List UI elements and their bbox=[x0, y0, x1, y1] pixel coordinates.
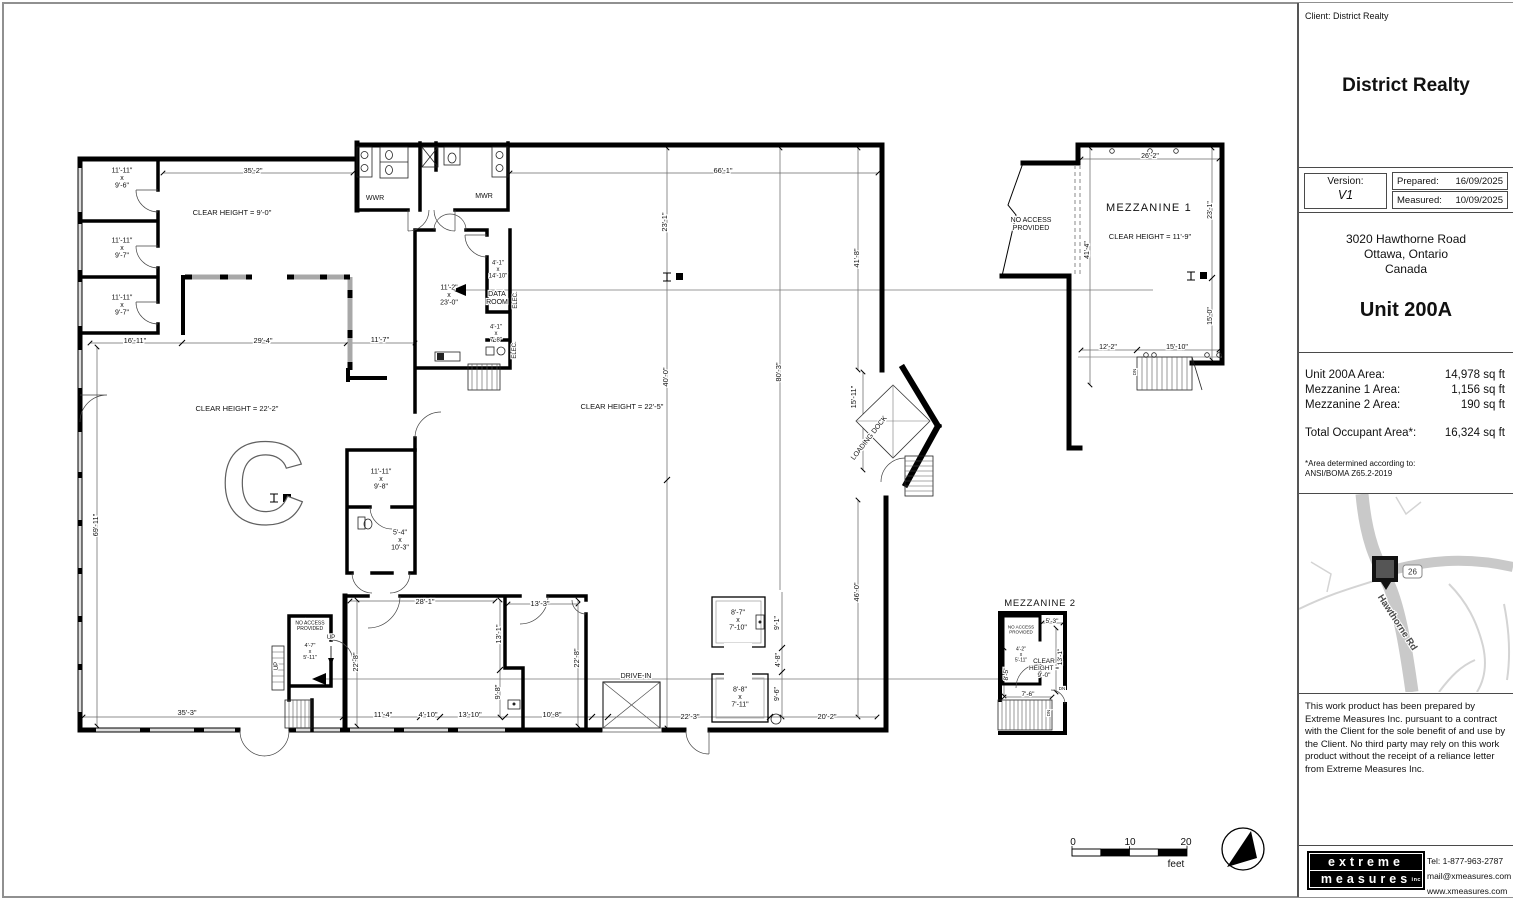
room-name-label: WWR bbox=[366, 195, 384, 202]
dim-label: 35'-3" bbox=[177, 708, 196, 717]
version-value: V1 bbox=[1305, 188, 1386, 202]
stair-direction-label: DN bbox=[1046, 710, 1051, 717]
dim-label: 13'-1" bbox=[1057, 648, 1064, 665]
room-size-label: 11'-11"x9'-7" bbox=[112, 237, 133, 259]
area-value: 190 sq ft bbox=[1461, 399, 1505, 411]
glazed-partitions bbox=[183, 277, 385, 380]
prepared-label: Prepared: bbox=[1397, 176, 1439, 187]
dim-label: 22'-8" bbox=[351, 652, 360, 671]
scale-unit-label: feet bbox=[1168, 859, 1185, 870]
dim-label: 23'-1" bbox=[660, 212, 669, 231]
scale-tick-label: 0 bbox=[1070, 837, 1076, 848]
stair-direction-label: DN bbox=[1132, 369, 1137, 376]
area-value: 14,978 sq ft bbox=[1445, 369, 1505, 381]
dim-label: 15'-11" bbox=[849, 385, 858, 408]
drive-in-label: DRIVE-IN bbox=[621, 673, 652, 680]
dim-label: 26'-2" bbox=[1141, 153, 1159, 160]
dim-label: 22'-3" bbox=[680, 712, 699, 721]
stair-direction-label: DN bbox=[1059, 686, 1066, 691]
area-row: Mezzanine 2 Area: 190 sq ft bbox=[1305, 399, 1505, 411]
measured-cell: Measured: 10/09/2025 bbox=[1392, 191, 1508, 209]
dim-label: 80'-3" bbox=[774, 362, 783, 381]
logo-word: measures inc bbox=[1310, 871, 1422, 887]
clear-height-label: CLEAR HEIGHT = 22'-5" bbox=[581, 402, 664, 411]
divider bbox=[1299, 212, 1513, 213]
no-access-label: NO ACCESSPROVIDED bbox=[295, 620, 325, 632]
title-block: Client: District Realty District Realty … bbox=[1297, 3, 1513, 897]
room-size-label: 11'-11"x9'-8" bbox=[371, 468, 392, 490]
disclaimer-text: This work product has been prepared by E… bbox=[1305, 701, 1506, 776]
location-map: 26 Hawthorne Rd bbox=[1299, 494, 1513, 692]
measured-label: Measured: bbox=[1397, 195, 1442, 206]
measured-date: 10/09/2025 bbox=[1455, 195, 1503, 206]
prepared-cell: Prepared: 16/09/2025 bbox=[1392, 172, 1508, 190]
clear-height-label: CLEAR HEIGHT = 11'-9" bbox=[1109, 232, 1192, 241]
fixtures bbox=[270, 147, 1221, 732]
route-badge: 26 bbox=[1408, 568, 1417, 577]
column-grid-letter: C bbox=[220, 418, 305, 550]
version-cell: Version: V1 bbox=[1304, 173, 1387, 209]
stair-direction-label: UP bbox=[274, 662, 280, 670]
room-size-label: 4'-1"x14'-10" bbox=[489, 260, 508, 279]
room-size-label: 11'-11"x9'-7" bbox=[112, 294, 133, 316]
dim-label: 13'-1" bbox=[494, 624, 503, 643]
dim-label: 13'-3" bbox=[530, 599, 549, 608]
dim-label: 46'-0" bbox=[852, 582, 861, 601]
divider bbox=[1299, 693, 1513, 694]
room-size-label: 11'-2"x23'-0" bbox=[440, 284, 458, 306]
area-label: Mezzanine 2 Area: bbox=[1305, 399, 1400, 411]
clear-height-label: CLEARHEIGHT =9'-0" bbox=[1029, 657, 1059, 678]
dim-label: 12'-2" bbox=[1099, 344, 1117, 351]
area-footnote: *Area determined according to: ANSI/BOMA… bbox=[1305, 459, 1415, 479]
leader-arrow bbox=[312, 673, 326, 685]
unit-title: Unit 200A bbox=[1299, 299, 1513, 322]
scale-tick-label: 10 bbox=[1124, 837, 1136, 848]
dim-label: 9'-6" bbox=[774, 687, 781, 701]
total-area-label: Total Occupant Area*: bbox=[1305, 427, 1416, 439]
no-access-label: NO ACCESSPROVIDED bbox=[1011, 217, 1052, 232]
dim-label: 40'-0" bbox=[661, 367, 670, 386]
clear-height-label: CLEAR HEIGHT = 22'-2" bbox=[196, 404, 279, 413]
dim-label: 5'-3" bbox=[1046, 618, 1060, 625]
divider bbox=[1299, 845, 1513, 846]
dim-label: 9'-8" bbox=[493, 684, 502, 699]
divider bbox=[1299, 352, 1513, 353]
dim-label: 13'-10" bbox=[458, 710, 482, 719]
address-line: 3020 Hawthorne Road bbox=[1299, 232, 1513, 247]
dim-label: 7'-6" bbox=[1022, 691, 1036, 698]
dim-label: 10'-8" bbox=[542, 710, 561, 719]
area-label: Unit 200A Area: bbox=[1305, 369, 1385, 381]
room-size-label: 4'-1"x7'-8" bbox=[490, 324, 502, 343]
dim-label: 16'-11" bbox=[124, 336, 147, 345]
scale-tick-label: 20 bbox=[1180, 837, 1192, 848]
extreme-measures-logo: extreme measures inc bbox=[1307, 851, 1425, 890]
dim-label: 41'-4" bbox=[1084, 241, 1091, 259]
dim-label: 15'-0" bbox=[1207, 307, 1214, 325]
dim-label: 66'-1" bbox=[713, 166, 732, 175]
dim-label: 29'-4" bbox=[253, 336, 272, 345]
dim-label: 69'-11" bbox=[91, 513, 100, 536]
logo-word: extreme bbox=[1310, 854, 1422, 870]
contact-info: Tel: 1-877-963-2787 mail@xmeasures.com w… bbox=[1427, 854, 1511, 899]
dim-label: 22'-8" bbox=[572, 648, 581, 667]
dim-label: 23'-1" bbox=[1207, 201, 1214, 219]
dim-label: 9'-1" bbox=[774, 616, 781, 630]
website-line: www.xmeasures.com bbox=[1427, 884, 1511, 899]
dim-label: 35'-2" bbox=[243, 166, 262, 175]
room-size-label: 8'-7"x7'-10" bbox=[729, 609, 747, 631]
phone-line: Tel: 1-877-963-2787 bbox=[1427, 854, 1511, 869]
dim-label: 28'-1" bbox=[415, 597, 434, 606]
room-name-label: DATAROOM bbox=[486, 291, 508, 306]
logo-suffix: inc bbox=[1412, 872, 1421, 888]
mezzanine-title: MEZZANINE 1 bbox=[1106, 202, 1192, 214]
room-size-label: 8'-8"x7'-11" bbox=[731, 686, 749, 708]
plan-labels: 11'-11"x9'-6"11'-11"x9'-7"11'-11"x9'-7"C… bbox=[91, 153, 1214, 870]
clear-height-label: CLEAR HEIGHT = 9'-0" bbox=[193, 208, 272, 217]
floor-plan-drawing: 11'-11"x9'-6"11'-11"x9'-7"11'-11"x9'-7"C… bbox=[0, 0, 1295, 900]
area-row: Mezzanine 1 Area: 1,156 sq ft bbox=[1305, 384, 1505, 396]
mezzanine-title: MEZZANINE 2 bbox=[1004, 598, 1076, 609]
area-row: Unit 200A Area: 14,978 sq ft bbox=[1305, 369, 1505, 381]
room-name-label: ELEC. bbox=[513, 291, 519, 309]
company-name: District Realty bbox=[1299, 75, 1513, 97]
dim-label: 4'-10" bbox=[418, 710, 437, 719]
dim-label: 4'-8" bbox=[775, 653, 782, 667]
dim-label: 15'-10" bbox=[1166, 344, 1188, 351]
address-line: Canada bbox=[1299, 262, 1513, 277]
room-name-label: ELEC. bbox=[512, 341, 518, 359]
area-label: Mezzanine 1 Area: bbox=[1305, 384, 1400, 396]
dim-label: 8'-5" bbox=[1003, 667, 1010, 681]
version-label: Version: bbox=[1305, 176, 1386, 187]
stair-direction-label: UP bbox=[327, 635, 335, 641]
total-area-row: Total Occupant Area*: 16,324 sq ft bbox=[1305, 427, 1505, 439]
client-line: Client: District Realty bbox=[1305, 11, 1389, 21]
divider bbox=[1299, 167, 1513, 168]
no-access-label: NO ACCESSPROVIDED bbox=[1008, 624, 1034, 634]
dim-label: 11'-4" bbox=[374, 710, 393, 719]
site-address: 3020 Hawthorne Road Ottawa, Ontario Cana… bbox=[1299, 232, 1513, 277]
email-line: mail@xmeasures.com bbox=[1427, 869, 1511, 884]
room-size-label: 11'-11"x9'-6" bbox=[112, 167, 133, 189]
dim-label: 11'-7" bbox=[371, 335, 390, 344]
total-area-value: 16,324 sq ft bbox=[1445, 427, 1505, 439]
room-name-label: MWR bbox=[475, 193, 493, 200]
dim-label: 20'-2" bbox=[817, 712, 836, 721]
dim-label: 41'-8" bbox=[852, 248, 861, 267]
north-arrow-icon bbox=[1222, 828, 1264, 870]
room-size-label: 4'-2"x5'-11" bbox=[1015, 647, 1028, 664]
prepared-date: 16/09/2025 bbox=[1455, 176, 1503, 187]
area-value: 1,156 sq ft bbox=[1451, 384, 1505, 396]
address-line: Ottawa, Ontario bbox=[1299, 247, 1513, 262]
room-size-label: 5'-4"x10'-3" bbox=[391, 529, 409, 551]
room-size-label: 4'-7"x5'-11" bbox=[303, 643, 317, 661]
